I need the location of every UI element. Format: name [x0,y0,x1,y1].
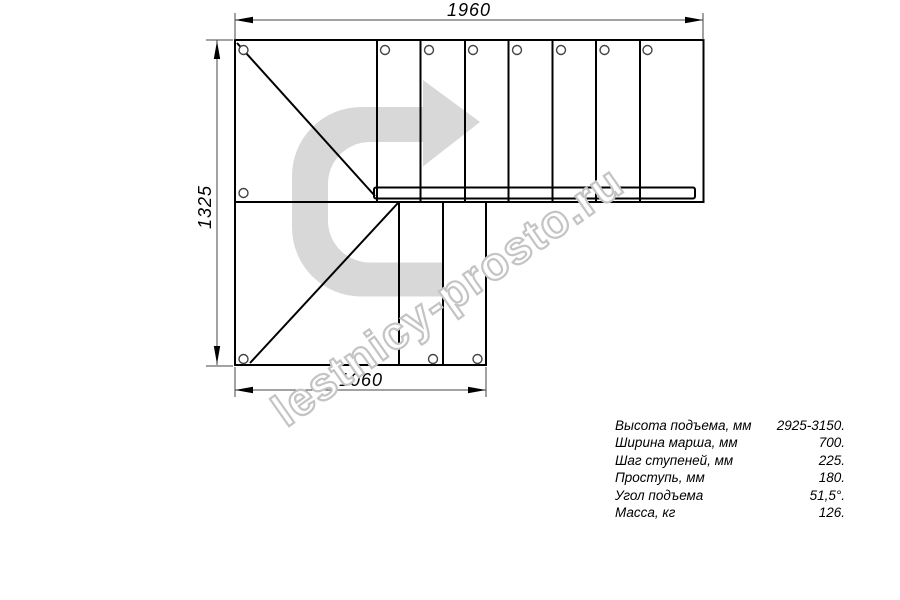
spec-row-tread: Проступь, мм 180. [615,469,845,486]
dim-label-left: 1325 [195,185,215,229]
spec-value: 2925-3150. [777,417,845,434]
spec-row-flight-width: Ширина марша, мм 700. [615,434,845,451]
stringer-bar [374,188,695,199]
spec-label: Высота подъема, мм [615,417,751,434]
mount-hole [473,355,482,364]
spec-row-rise-height: Высота подъема, мм 2925-3150. [615,417,845,434]
spec-row-climb-angle: Угол подъема 51,5°. [615,487,845,504]
spec-label: Ширина марша, мм [615,434,738,451]
spec-row-mass: Масса, кг 126. [615,504,845,521]
mount-hole [381,46,390,55]
mount-hole [425,46,434,55]
spec-value: 700. [819,434,845,451]
spec-value: 126. [819,504,845,521]
mount-hole [239,355,248,364]
mount-hole [469,46,478,55]
spec-row-step-pitch: Шаг ступеней, мм 225. [615,452,845,469]
mount-hole [429,355,438,364]
spec-value: 180. [819,469,845,486]
mount-hole [643,46,652,55]
spec-label: Шаг ступеней, мм [615,452,733,469]
dimension-arrowheads [214,17,703,393]
mount-hole [600,46,609,55]
spec-value: 225. [819,452,845,469]
spec-table: Высота подъема, мм 2925-3150. Ширина мар… [615,417,845,521]
spec-value: 51,5°. [810,487,845,504]
mount-hole [239,189,248,198]
stair-drawing-canvas: 1960 1325 1060 lestnicy-prosto.ru Высота… [0,0,900,600]
dim-label-top: 1960 [447,0,491,20]
mount-hole [239,46,248,55]
spec-label: Угол подъема [615,487,703,504]
stair-outlines [235,40,704,365]
spec-label: Масса, кг [615,504,675,521]
spec-label: Проступь, мм [615,469,705,486]
mount-hole [557,46,566,55]
mount-hole [513,46,522,55]
